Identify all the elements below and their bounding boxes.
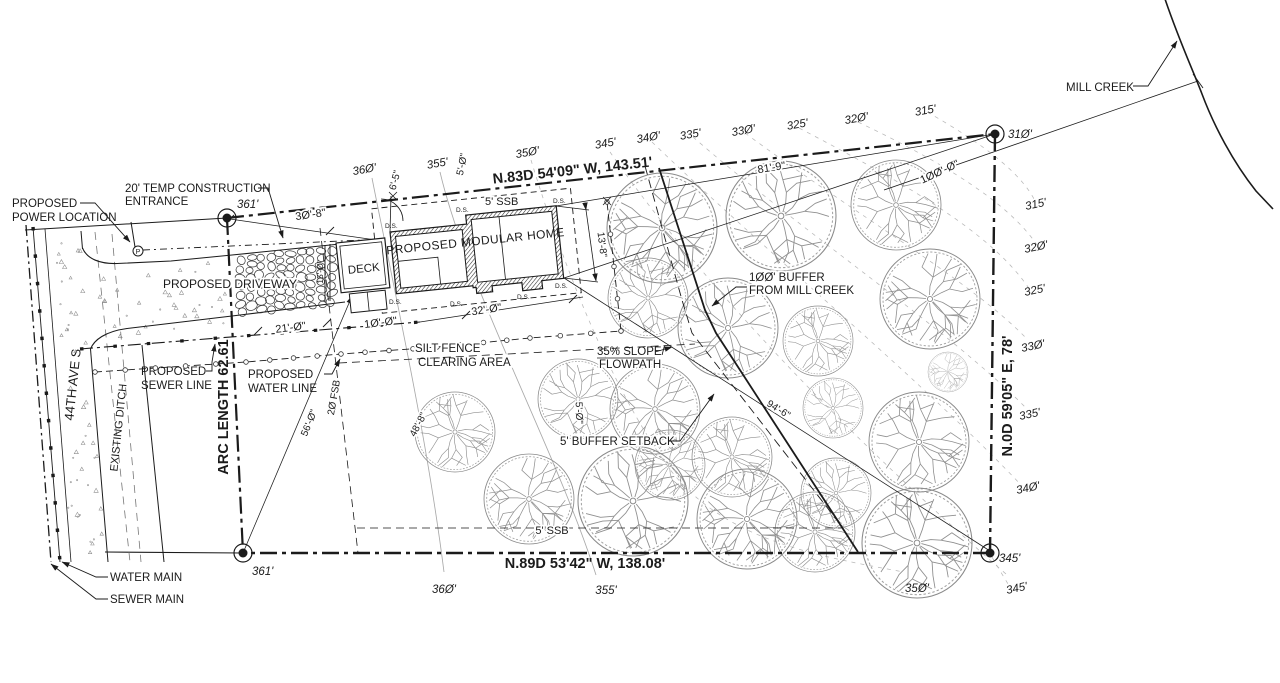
svg-text:SEWER MAIN: SEWER MAIN (110, 594, 184, 606)
svg-text:ENTRANCE: ENTRANCE (125, 196, 189, 208)
svg-text:361': 361' (252, 566, 274, 578)
svg-text:WATER LINE: WATER LINE (248, 383, 317, 395)
svg-text:20' TEMP CONSTRUCTION: 20' TEMP CONSTRUCTION (125, 183, 271, 195)
svg-text:FLOWPATH: FLOWPATH (599, 359, 661, 371)
svg-text:SEWER LINE: SEWER LINE (141, 380, 212, 392)
svg-text:WATER MAIN: WATER MAIN (110, 572, 182, 584)
svg-text:D.S.: D.S. (450, 301, 463, 308)
svg-text:N.89D 53'42" W, 138.08': N.89D 53'42" W, 138.08' (505, 556, 665, 572)
svg-text:15'-Ø": 15'-Ø" (315, 260, 325, 284)
svg-text:D.S.: D.S. (555, 283, 568, 290)
svg-text:5' BUFFER SETBACK: 5' BUFFER SETBACK (560, 436, 675, 448)
svg-text:D.S.: D.S. (385, 223, 398, 230)
svg-text:5'-Ø": 5'-Ø" (573, 402, 585, 425)
svg-text:CLEARING AREA: CLEARING AREA (418, 357, 511, 369)
svg-text:31Ø': 31Ø' (1008, 129, 1033, 141)
svg-text:35Ø': 35Ø' (905, 583, 930, 595)
svg-text:5' SSB: 5' SSB (535, 525, 568, 537)
svg-text:ARC LENGTH 62.61: ARC LENGTH 62.61 (216, 339, 232, 474)
svg-text:PROPOSED: PROPOSED (141, 366, 206, 378)
svg-text:5' SSB: 5' SSB (485, 196, 518, 208)
svg-text:N.0D 59'05" E, 78': N.0D 59'05" E, 78' (1000, 336, 1016, 457)
svg-text:PROPOSED: PROPOSED (12, 198, 77, 210)
svg-text:PROPOSED: PROPOSED (248, 369, 313, 381)
svg-text:D.S.: D.S. (389, 299, 402, 306)
svg-text:D.S.: D.S. (553, 198, 566, 205)
svg-text:D.S.: D.S. (456, 207, 469, 214)
svg-text:345': 345' (999, 553, 1021, 565)
svg-text:D.S.: D.S. (517, 294, 530, 301)
svg-text:PROPOSED DRIVEWAY: PROPOSED DRIVEWAY (163, 277, 297, 291)
svg-text:361': 361' (237, 199, 259, 211)
svg-text:36Ø': 36Ø' (432, 584, 457, 596)
svg-text:POWER LOCATION: POWER LOCATION (12, 212, 117, 224)
svg-text:1ØØ' BUFFER: 1ØØ' BUFFER (749, 272, 825, 284)
svg-text:MILL CREEK: MILL CREEK (1066, 82, 1134, 94)
svg-text:SILT FENCE: SILT FENCE (415, 343, 481, 355)
svg-text:355': 355' (595, 585, 617, 597)
svg-text:FROM MILL CREEK: FROM MILL CREEK (749, 285, 854, 297)
svg-text:P: P (136, 249, 141, 256)
